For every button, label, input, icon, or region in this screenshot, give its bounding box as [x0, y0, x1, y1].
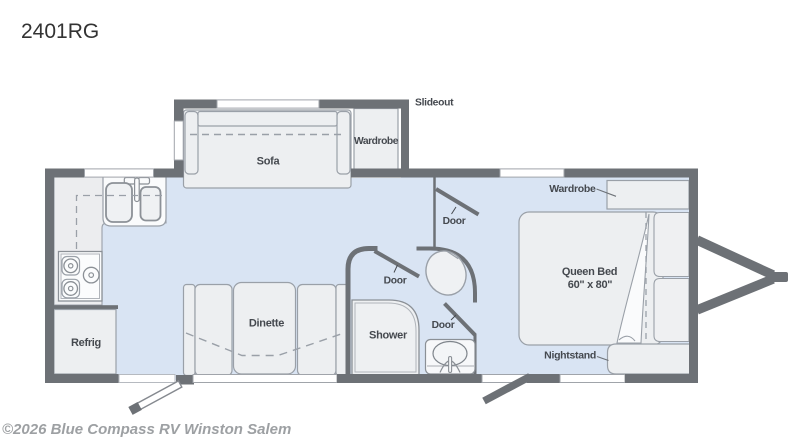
svg-text:Queen Bed: Queen Bed	[562, 266, 617, 278]
svg-text:Door: Door	[443, 216, 466, 227]
svg-text:Wardrobe: Wardrobe	[354, 136, 399, 147]
svg-text:Dinette: Dinette	[249, 318, 284, 330]
svg-text:Door: Door	[384, 276, 407, 287]
svg-text:Nightstand: Nightstand	[544, 350, 596, 362]
svg-text:Refrig: Refrig	[71, 337, 101, 349]
svg-text:Shower: Shower	[369, 330, 408, 342]
svg-text:Slideout: Slideout	[415, 98, 454, 109]
svg-text:Wardrobe: Wardrobe	[549, 183, 596, 195]
svg-text:Door: Door	[432, 320, 455, 331]
svg-text:Sofa: Sofa	[257, 156, 281, 168]
svg-text:60" x 80": 60" x 80"	[568, 279, 613, 291]
